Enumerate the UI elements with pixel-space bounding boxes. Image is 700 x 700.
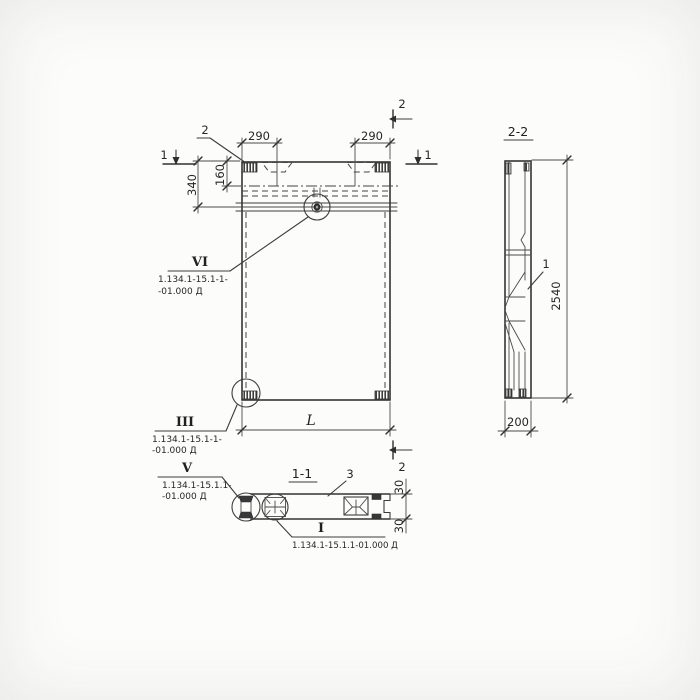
bar-right-end [372,494,390,519]
dim-160-label: 160 [213,164,227,186]
side-pad-bottom-right [519,389,526,397]
dim-length-label: L [305,413,315,429]
section-1-1: 1-1 [232,466,412,551]
lifting-slot-right [347,163,376,173]
cut-mark-2-bottom: 2 [389,441,412,474]
cut-1-right-label: 1 [424,148,431,162]
detail-vi-numeral: VI [191,255,208,270]
dim-30-bottom-label: 30 [392,519,406,534]
detail-vi-ref-2: -01.000 Д [158,287,203,297]
side-pad-top [506,163,511,174]
dim-30-top-label: 30 [392,480,406,495]
dim-length: L [236,402,396,436]
dim-2540-label: 2540 [549,281,563,310]
detail-v-ref-2: -01.000 Д [162,492,207,502]
detail-i-ref: 1.134.1-15.1.1-01.000 Д [292,541,398,551]
side-pad-top-2 [524,163,529,171]
console-detail [505,272,526,390]
detail-i-numeral: I [318,521,324,536]
detail-iii-numeral: III [176,415,194,430]
cut-mark-1-right: 1 [406,148,437,165]
anchor-block-bottom-left [242,391,257,399]
detail-iii-ref-1: 1.134.1-15.1-1- [152,435,222,445]
dim-290-right-label: 290 [361,129,383,143]
section-1-1-title: 1-1 [292,466,312,481]
loop-callout-label: 2 [201,123,208,137]
cut-mark-2-top: 2 [389,97,412,128]
anchor-block-bottom-right [375,391,390,399]
detail-vi-ref-1: 1.134.1-15.1-1- [158,275,228,285]
loop-cross-section [232,493,260,521]
dim-200: 200 [498,401,538,437]
front-view: 2 290 290 340 [160,97,437,474]
cut-2-top-label: 2 [398,97,405,111]
detail-v-ref-1: 1.134.1-15.1.1- [162,481,231,491]
detail-circle-vi [304,188,330,220]
detail-callout-v: V 1.134.1-15.1.1- -01.000 Д [158,461,239,502]
detail-iii-ref-2: -01.000 Д [152,446,197,456]
scanned-drawing-sheet: 2 290 290 340 [0,0,700,700]
section-2-2-title: 2-2 [508,124,528,139]
dim-290-left-label: 290 [248,129,270,143]
detail-v-numeral: V [181,461,193,476]
cut-mark-1-left: 1 [160,148,196,165]
dim-30-pair: 30 30 [390,479,412,533]
dim-340-label: 340 [185,174,199,196]
blueprint-canvas: 2 290 290 340 [0,0,700,700]
detail-callout-i: I 1.134.1-15.1.1-01.000 Д [277,521,398,551]
part-3-callout: 3 [328,467,354,496]
dim-2540: 2540 [532,155,573,403]
side-pad-bottom-left [506,389,512,397]
dim-200-label: 200 [507,415,529,429]
part-3-label: 3 [346,467,353,481]
anchor-block-top-left [242,163,257,172]
dim-290-left: 290 [237,129,282,186]
part-1-label: 1 [542,257,549,271]
middle-slot-detail [344,497,368,515]
detail-callout-iii: III 1.134.1-15.1-1- -01.000 Д [152,405,237,456]
dim-290-right: 290 [350,129,395,186]
detail-callout-vi: VI 1.134.1-15.1-1- -01.000 Д [158,217,308,297]
anchor-block-top-right [375,163,390,172]
keystone-insert [262,494,288,520]
cut-2-bottom-label: 2 [398,460,405,474]
cut-1-left-label: 1 [160,148,167,162]
section-2-2: 2-2 1 [498,124,573,437]
panel-outline [242,162,390,400]
